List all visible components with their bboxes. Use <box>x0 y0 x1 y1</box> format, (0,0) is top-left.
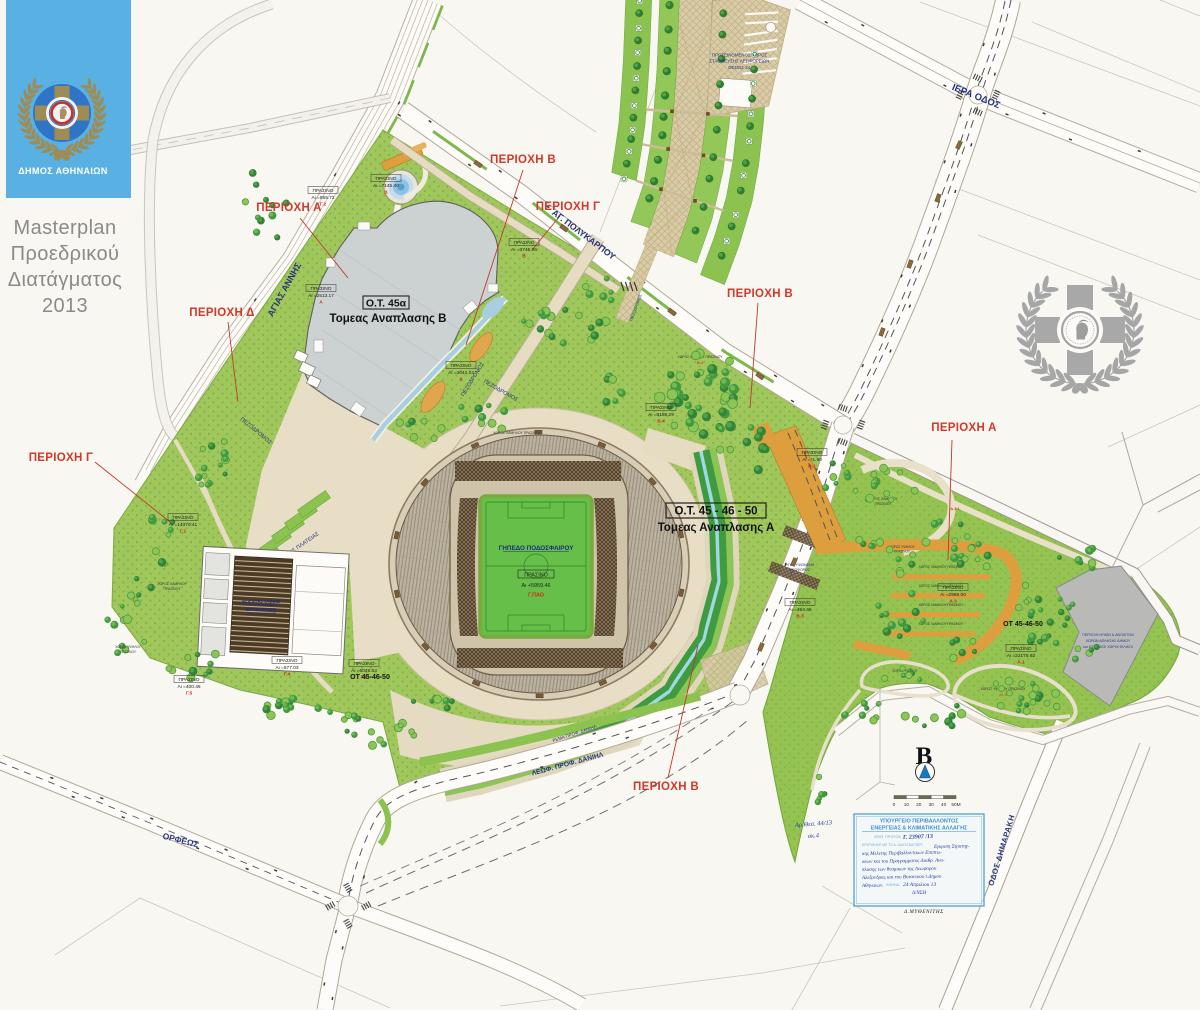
svg-text:Β.4: Β.4 <box>697 361 704 365</box>
svg-text:Α.1.1: Α.1.1 <box>950 506 960 511</box>
svg-text:Τομεας Αναπλασης Α: Τομεας Αναπλασης Α <box>658 522 775 534</box>
svg-text:ΠΡΑΣΙΝΟ: ΠΡΑΣΙΝΟ <box>375 176 396 182</box>
svg-text:Αι =2513.17: Αι =2513.17 <box>308 293 334 299</box>
svg-text:σκ.4: σκ.4 <box>808 832 820 840</box>
svg-text:ΠΡΑΣΙΝΟΥ: ΠΡΑΣΙΝΟΥ <box>894 550 911 554</box>
svg-text:Δ: Δ <box>459 377 463 383</box>
svg-text:Β.3: Β.3 <box>796 614 804 620</box>
svg-text:ΠΕΡΙΟΧΗ Γ: ΠΕΡΙΟΧΗ Γ <box>29 452 94 464</box>
svg-text:ΧΩΡΟΣ ΧΑΜΗΛΟΥ ΠΡΑΣΙΝΟΥ: ΧΩΡΟΣ ΧΑΜΗΛΟΥ ΠΡΑΣΙΝΟΥ <box>919 603 964 607</box>
svg-text:Αι =22175.62: Αι =22175.62 <box>1007 653 1036 659</box>
svg-text:ΠΕΡΙΟΧΗ Β: ΠΕΡΙΟΧΗ Β <box>633 781 699 793</box>
svg-text:ΠΕΡΙΟΧΗ Γ: ΠΕΡΙΟΧΗ Γ <box>536 201 601 213</box>
svg-text:ΠΡΑΣΙΝΟΥ: ΠΡΑΣΙΝΟΥ <box>164 587 182 591</box>
svg-text:Γ.2: Γ.2 <box>320 202 327 208</box>
svg-text:Γ.5: Γ.5 <box>186 691 193 697</box>
svg-text:ΠΡΑΣΙΝΟ: ΠΡΑΣΙΝΟ <box>513 240 534 246</box>
svg-text:ΠΕΡΙΟΧΗ Δ: ΠΕΡΙΟΧΗ Δ <box>189 307 255 319</box>
svg-text:ΠΕΡΙΟΧΗ ΗΠΙΩΝ & ΑΝΟΙΚΤΩΝ: ΠΕΡΙΟΧΗ ΗΠΙΩΝ & ΑΝΟΙΚΤΩΝ <box>1082 633 1134 637</box>
svg-text:ΧΩΡΩΝ ΑΘΛΗΣΗΣ ΔΗΜΟΥ: ΧΩΡΩΝ ΑΘΛΗΣΗΣ ΔΗΜΟΥ <box>1086 639 1131 643</box>
svg-text:Ο.Τ. 45α: Ο.Τ. 45α <box>366 298 407 310</box>
svg-text:ΧΩΡΟΣ ΧΑΜΗΛΟΥ ΠΡΑΣΙΝΟΥ: ΧΩΡΟΣ ΧΑΜΗΛΟΥ ΠΡΑΣΙΝΟΥ <box>919 622 964 626</box>
svg-text:ΠΡΟΤΕΙΝΟΜΕΝΟΣ ΧΩΡΟΣ: ΠΡΟΤΕΙΝΟΜΕΝΟΣ ΧΩΡΟΣ <box>712 53 768 58</box>
svg-text:ΠΡΑΣΙΝΟ: ΠΡΑΣΙΝΟ <box>801 450 822 456</box>
svg-text:30: 30 <box>929 802 935 808</box>
svg-text:Αι =7145.40: Αι =7145.40 <box>373 183 399 189</box>
svg-text:ΥΠΕΡΥΨΩΜΕΝΗ: ΥΠΕΡΥΨΩΜΕΝΗ <box>786 563 815 567</box>
svg-text:ΠΡΑΣΙΝΟ: ΠΡΑΣΙΝΟ <box>276 658 297 664</box>
svg-text:Αι +5959.46: Αι +5959.46 <box>522 583 551 589</box>
svg-text:ΕΡΑΣΙΤΕΧΝΗ: ΕΡΑΣΙΤΕΧΝΗ <box>246 607 277 613</box>
svg-text:ΠΡΑΣΙΝΟ: ΠΡΑΣΙΝΟ <box>1010 646 1031 652</box>
svg-text:Διατάγματος: Διατάγματος <box>8 269 122 291</box>
svg-text:Α.3: Α.3 <box>949 599 957 605</box>
svg-text:ΟΤ 45-46-50: ΟΤ 45-46-50 <box>350 674 390 681</box>
svg-text:ΧΩΡΟΣ ΥΨΗΛΟΥ: ΧΩΡΟΣ ΥΨΗΛΟΥ <box>115 645 141 649</box>
svg-text:ΠΡΑΣΙΝΟ: ΠΡΑΣΙΝΟ <box>524 573 548 579</box>
svg-text:Γ. 23907 /13: Γ. 23907 /13 <box>902 834 933 841</box>
svg-text:Αθηναιων.: Αθηναιων. <box>861 883 884 889</box>
svg-text:ΠΡΑΣΙΝΟ: ΠΡΑΣΙΝΟ <box>942 585 963 591</box>
svg-text:Γ.1: Γ.1 <box>180 529 187 535</box>
svg-text:10: 10 <box>904 802 910 808</box>
svg-text:20: 20 <box>916 802 922 808</box>
svg-text:ΥΠΟΥΡΓΕΙΟ ΠΕΡΙΒΑΛΛΟΝΤΟΣ: ΥΠΟΥΡΓΕΙΟ ΠΕΡΙΒΑΛΛΟΝΤΟΣ <box>880 819 960 825</box>
svg-text:24 Απριλιου 13: 24 Απριλιου 13 <box>903 881 936 888</box>
svg-text:Τομεας Αναπλασης Β: Τομεας Αναπλασης Β <box>330 313 447 325</box>
svg-text:ΠΡΑΣΙΝΟ: ΠΡΑΣΙΝΟ <box>450 363 471 369</box>
svg-text:ΠΡΑΣΙΝΟΥ: ΠΡΑΣΙΝΟΥ <box>120 650 137 654</box>
svg-text:Αι =400.46: Αι =400.46 <box>177 684 200 690</box>
svg-text:Δ: Δ <box>384 190 388 196</box>
svg-text:ΕΓΚΑΤΑΣΤΑΣΕΙΣ: ΕΓΚΑΤΑΣΤΑΣΕΙΣ <box>242 599 280 605</box>
svg-text:Αι =855.72: Αι =855.72 <box>311 195 334 201</box>
svg-text:Δ.ΜΥΘΕΝΙΤΗΣ: Δ.ΜΥΘΕΝΙΤΗΣ <box>903 909 944 915</box>
svg-text:ΠΕΡΙΟΧΗ Β: ΠΕΡΙΟΧΗ Β <box>490 154 556 166</box>
svg-text:ΑΘΗΝΑ,: ΑΘΗΝΑ, <box>886 883 900 887</box>
svg-text:Β.1: Β.1 <box>808 464 816 470</box>
svg-text:ΠΡΑΣΙΝΟ: ΠΡΑΣΙΝΟ <box>312 188 333 194</box>
svg-text:Αι =577.03: Αι =577.03 <box>275 665 298 671</box>
svg-text:Δ/ΝΣΗ: Δ/ΝΣΗ <box>911 891 927 896</box>
svg-text:0: 0 <box>893 802 896 808</box>
svg-text:Αλεξανδρας και του Βοτανικου τ: Αλεξανδρας και του Βοτανικου τ.Δημου <box>861 873 942 881</box>
svg-text:ΠΡΑΣΙΝΟΥ: ΠΡΑΣΙΝΟΥ <box>875 502 893 506</box>
svg-text:ΠΡΑΣΙΝΟ: ΠΡΑΣΙΝΟ <box>650 405 671 411</box>
svg-text:Α1.8: Α1.8 <box>999 693 1007 697</box>
svg-text:Γ.ΠΑΟ: Γ.ΠΑΟ <box>528 593 544 599</box>
svg-text:Β: Β <box>522 254 526 260</box>
svg-text:ΟΤ 45-46-50: ΟΤ 45-46-50 <box>1003 621 1043 628</box>
svg-text:ΠΕΡΙΟΧΗ Β: ΠΕΡΙΟΧΗ Β <box>727 288 793 300</box>
svg-text:Αι =4044.24: Αι =4044.24 <box>448 370 474 376</box>
svg-text:ΠΡΑΣΙΝΟ: ΠΡΑΣΙΝΟ <box>353 661 374 667</box>
svg-text:ΠΡΑΣΙΝΟ: ΠΡΑΣΙΝΟ <box>310 286 331 292</box>
svg-text:ΠΡΑΣΙΝΟ: ΠΡΑΣΙΝΟ <box>172 515 193 521</box>
svg-text:ΛΕΩΦΟΡΟΣ: ΛΕΩΦΟΡΟΣ <box>790 568 811 572</box>
svg-text:Αι =2966.00: Αι =2966.00 <box>940 592 966 598</box>
svg-text:40: 40 <box>941 802 947 808</box>
svg-text:ΠΕΡΙΟΧΗ Α: ΠΕΡΙΟΧΗ Α <box>931 422 997 434</box>
svg-text:Αι =*1.90: Αι =*1.90 <box>802 457 822 463</box>
svg-text:ΕΓΚΡΙΘΗΚΕ ΜΕ ΤΟ Δ. ΔΙΑΤΑΓΜΑ ΠΕ: ΕΓΚΡΙΘΗΚΕ ΜΕ ΤΟ Δ. ΔΙΑΤΑΓΜΑ ΠΕΡΙ <box>862 843 922 847</box>
svg-text:Προεδρικού: Προεδρικού <box>11 243 120 265</box>
svg-text:Αι =14370.41: Αι =14370.41 <box>169 522 198 528</box>
svg-text:ΣΤΑΘΜΕΥΣΗΣ ΛΕΩΦΟΡΕΙΩΝ: ΣΤΑΘΜΕΥΣΗΣ ΛΕΩΦΟΡΕΙΩΝ <box>709 59 769 64</box>
svg-text:ΧΩΡΟΣ ΧΑΜΗΛΟΥ: ΧΩΡΟΣ ΧΑΜΗΛΟΥ <box>157 582 187 586</box>
svg-text:ΓΗΠΕΔΟ ΠΟΔΟΣΦΑΙΡΟΥ: ΓΗΠΕΔΟ ΠΟΔΟΣΦΑΙΡΟΥ <box>499 545 575 552</box>
svg-text:Αι =494.46: Αι =494.46 <box>788 607 811 613</box>
svg-text:2013: 2013 <box>42 295 88 317</box>
svg-text:ΘΕΣΕΙΣ 24: ΘΕΣΕΙΣ 24 <box>728 65 751 70</box>
svg-text:Α.1: Α.1 <box>1017 660 1025 666</box>
svg-text:Γ.4: Γ.4 <box>284 672 291 678</box>
svg-text:ΕΝΕΡΓΕΙΑΣ & ΚΛΙΜΑΤΙΚΗΣ ΑΛΛΑΓΗΣ: ΕΝΕΡΓΕΙΑΣ & ΚΛΙΜΑΤΙΚΗΣ ΑΛΛΑΓΗΣ <box>871 826 968 832</box>
svg-text:Β.4: Β.4 <box>657 419 665 425</box>
svg-text:ΠΕΡΙΟΧΗ Α: ΠΕΡΙΟΧΗ Α <box>256 202 322 214</box>
svg-text:Α: Α <box>319 300 323 306</box>
svg-text:Masterplan: Masterplan <box>14 217 117 239</box>
svg-text:ΔΗΜΟΣ ΑΘΗΝΑΙΩΝ: ΔΗΜΟΣ ΑΘΗΝΑΙΩΝ <box>18 166 108 176</box>
svg-text:ΑΡΙΘ. ΠΡΩΤΟΚ.: ΑΡΙΘ. ΠΡΩΤΟΚ. <box>874 835 902 839</box>
svg-text:ΠΡΑΣΙΝΟ: ΠΡΑΣΙΝΟ <box>178 677 199 683</box>
svg-text:Αι =3746.26: Αι =3746.26 <box>511 247 537 253</box>
svg-text:Αι =8186.29: Αι =8186.29 <box>648 412 674 418</box>
svg-text:ΠΡΑΣΙΝΟ: ΠΡΑΣΙΝΟ <box>789 600 810 606</box>
svg-text:Ο.Τ. 45 - 46 - 50: Ο.Τ. 45 - 46 - 50 <box>674 506 757 518</box>
svg-text:50M: 50M <box>951 802 960 808</box>
svg-text:ΧΩΡΟΣ ΧΑΜΗΛΟΥ ΠΡΑΣΙΝΟΥ: ΧΩΡΟΣ ΧΑΜΗΛΟΥ ΠΡΑΣΙΝΟΥ <box>493 431 541 435</box>
